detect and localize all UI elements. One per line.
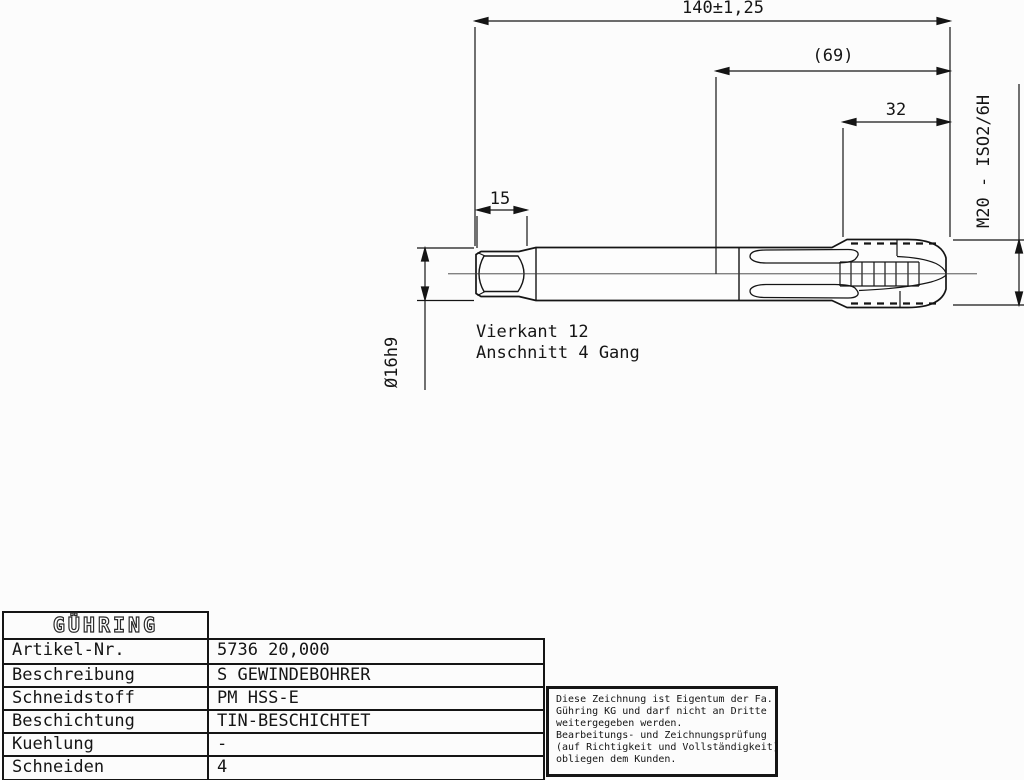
- title-block: GÜHRING Artikel-Nr. 5736 20,000 Beschrei…: [2, 611, 545, 780]
- row-label: Beschichtung: [4, 711, 209, 732]
- shank-diameter-label: Ø16h9: [384, 337, 401, 388]
- row-value: 5736 20,000: [209, 640, 543, 663]
- table-row: Artikel-Nr. 5736 20,000: [4, 640, 543, 663]
- title-block-rows: Artikel-Nr. 5736 20,000 Beschreibung S G…: [2, 638, 545, 780]
- row-value: S GEWINDEBOHRER: [209, 665, 543, 686]
- table-row: Beschichtung TIN-BESCHICHTET: [4, 709, 543, 732]
- row-label: Kuehlung: [4, 734, 209, 755]
- row-value: PM HSS-E: [209, 688, 543, 709]
- table-row: Schneiden 4: [4, 755, 543, 778]
- thread-spec-label: M20 - ISO2/6H: [976, 95, 993, 228]
- disclaimer-line: obliegen dem Kunden.: [556, 754, 676, 765]
- drawing-notes: Vierkant 12 Anschnitt 4 Gang: [476, 322, 640, 364]
- dim-overall-label: 140±1,25: [660, 0, 786, 18]
- dim-thread-label: 32: [866, 100, 926, 120]
- row-label: Schneiden: [4, 757, 209, 778]
- dim-flute-label: (69): [793, 46, 873, 66]
- table-row: Kuehlung -: [4, 732, 543, 755]
- row-value: TIN-BESCHICHTET: [209, 711, 543, 732]
- disclaimer-line: Diese Zeichnung ist Eigentum der Fa.: [556, 694, 773, 705]
- table-row: Schneidstoff PM HSS-E: [4, 686, 543, 709]
- row-label: Schneidstoff: [4, 688, 209, 709]
- row-value: -: [209, 734, 543, 755]
- disclaimer-line: (auf Richtigkeit und Vollständigkeit): [556, 742, 779, 753]
- square-note: Vierkant 12: [476, 322, 589, 342]
- guehring-logo-cell: GÜHRING: [2, 611, 209, 638]
- dim-square-label: 15: [472, 189, 528, 209]
- disclaimer-box: Diese Zeichnung ist Eigentum der Fa. Güh…: [546, 686, 778, 777]
- disclaimer-line: Gühring KG und darf nicht an Dritte: [556, 706, 767, 717]
- disclaimer-line: weitergegeben werden.: [556, 718, 682, 729]
- row-value: 4: [209, 757, 543, 778]
- drawing-sheet: 140±1,25 (69) 32 15 M20 - ISO2/6H Ø16h9 …: [0, 0, 1024, 780]
- table-row: Beschreibung S GEWINDEBOHRER: [4, 663, 543, 686]
- disclaimer-line: Bearbeitungs- und Zeichnungsprüfung: [556, 730, 767, 741]
- chamfer-note: Anschnitt 4 Gang: [476, 343, 640, 363]
- row-label: Artikel-Nr.: [4, 640, 209, 663]
- guehring-logo: GÜHRING: [53, 613, 158, 637]
- row-label: Beschreibung: [4, 665, 209, 686]
